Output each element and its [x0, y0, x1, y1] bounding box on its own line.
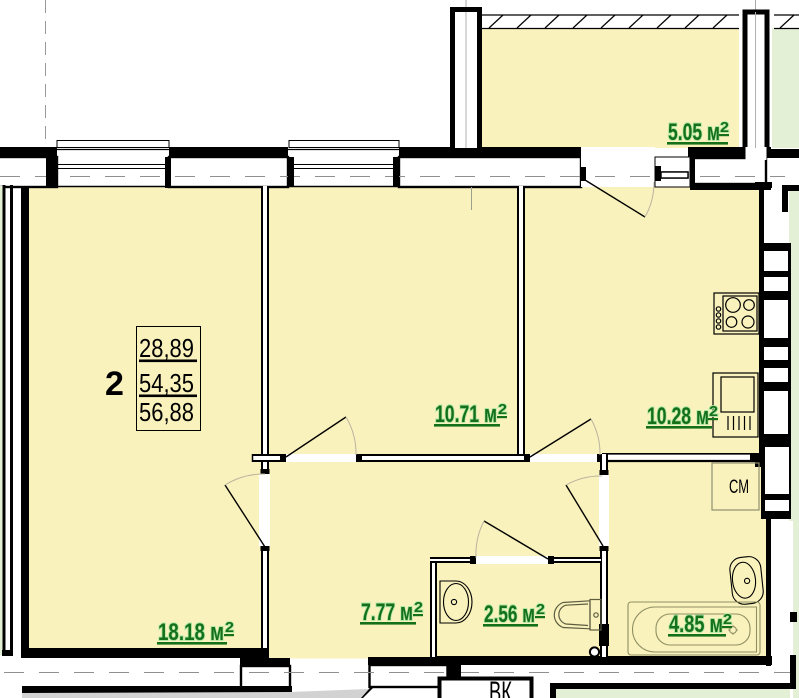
svg-text:2: 2 — [536, 601, 545, 618]
svg-text:18.18 м: 18.18 м — [158, 619, 224, 646]
svg-text:2: 2 — [498, 401, 507, 418]
svg-text:28,89: 28,89 — [139, 333, 194, 363]
svg-text:10.71 м: 10.71 м — [435, 401, 497, 428]
svg-text:7.77 м: 7.77 м — [361, 599, 413, 626]
svg-text:2: 2 — [720, 119, 729, 136]
svg-text:СМ: СМ — [729, 477, 749, 498]
svg-text:54,35: 54,35 — [139, 368, 194, 398]
svg-text:56,88: 56,88 — [139, 397, 194, 427]
svg-text:4.85 м: 4.85 м — [669, 611, 723, 638]
svg-text:2: 2 — [723, 611, 732, 628]
svg-text:2: 2 — [105, 365, 124, 403]
svg-text:2: 2 — [414, 599, 423, 616]
svg-text:10.28 м: 10.28 м — [647, 403, 709, 430]
svg-text:ВК: ВК — [489, 676, 512, 698]
svg-text:2: 2 — [709, 403, 718, 420]
svg-text:2.56 м: 2.56 м — [484, 601, 535, 628]
svg-text:5.05 м: 5.05 м — [668, 119, 720, 146]
svg-text:2: 2 — [225, 619, 234, 636]
